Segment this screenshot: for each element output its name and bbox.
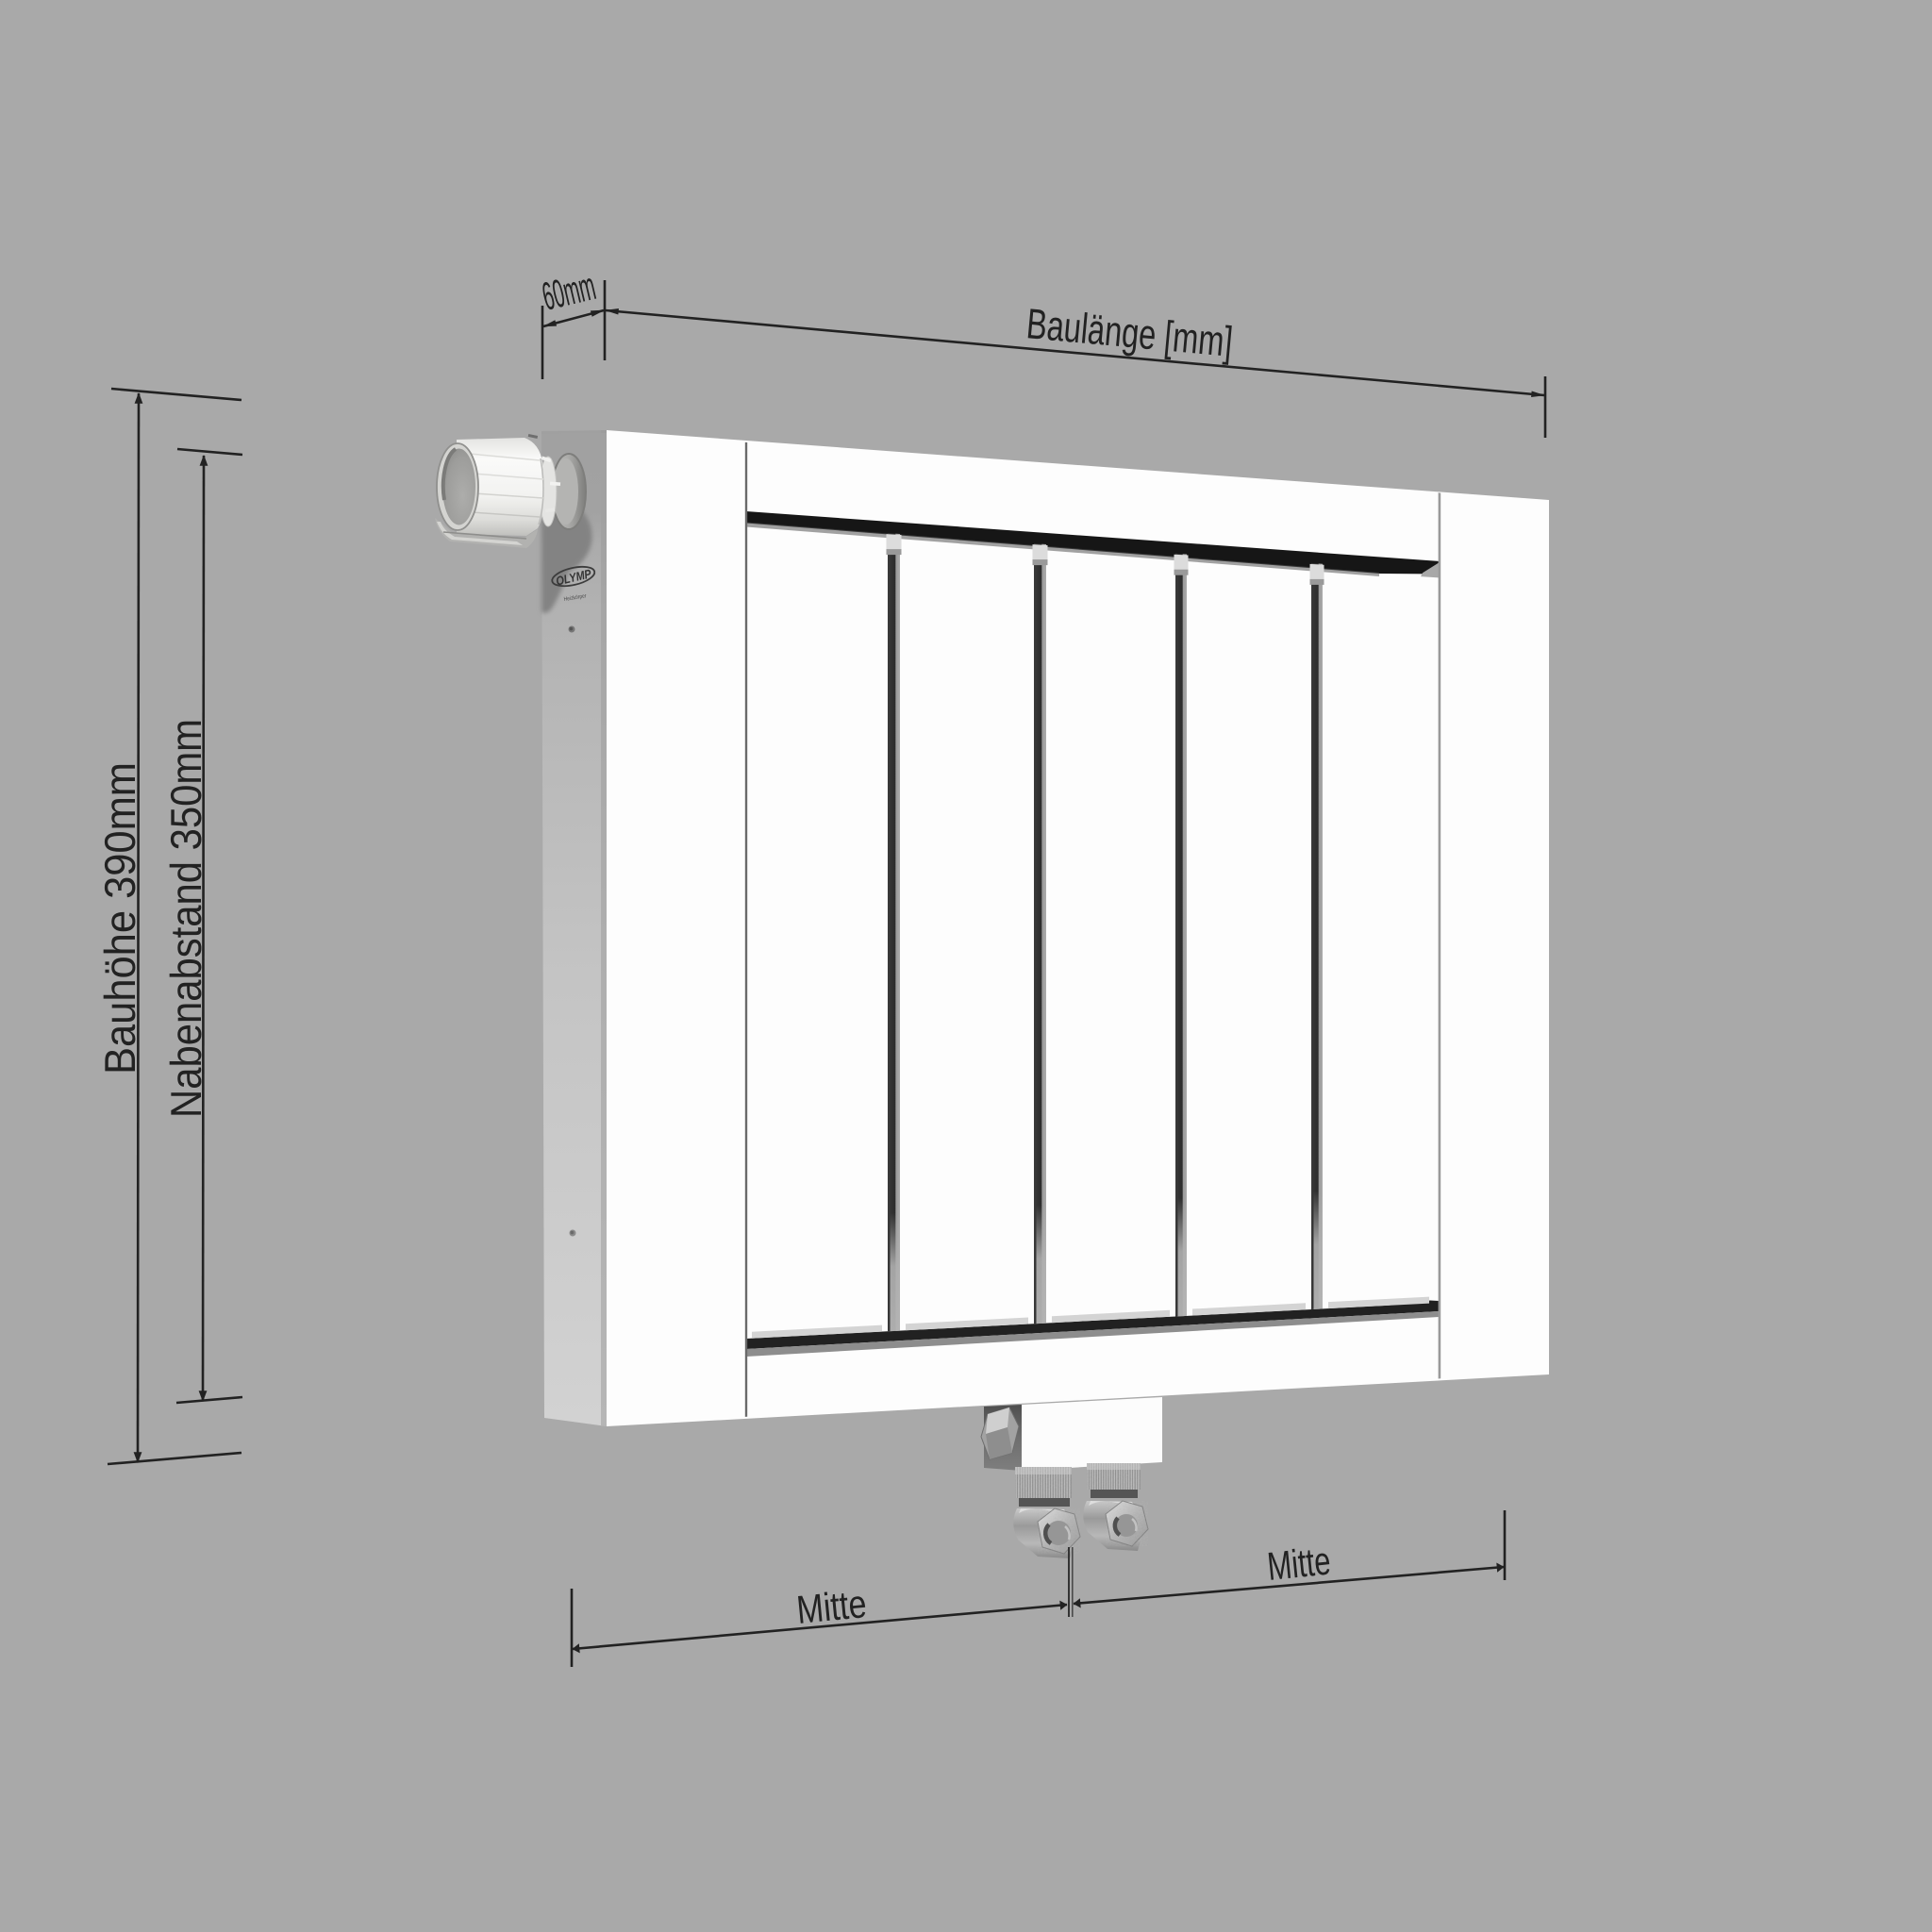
svg-text:Mitte: Mitte [794, 1581, 868, 1632]
svg-text:Bauhöhe 390mm: Bauhöhe 390mm [95, 762, 144, 1074]
svg-text:Nabenabstand 350mm: Nabenabstand 350mm [161, 719, 210, 1118]
svg-text:Mitte: Mitte [1265, 1539, 1332, 1589]
